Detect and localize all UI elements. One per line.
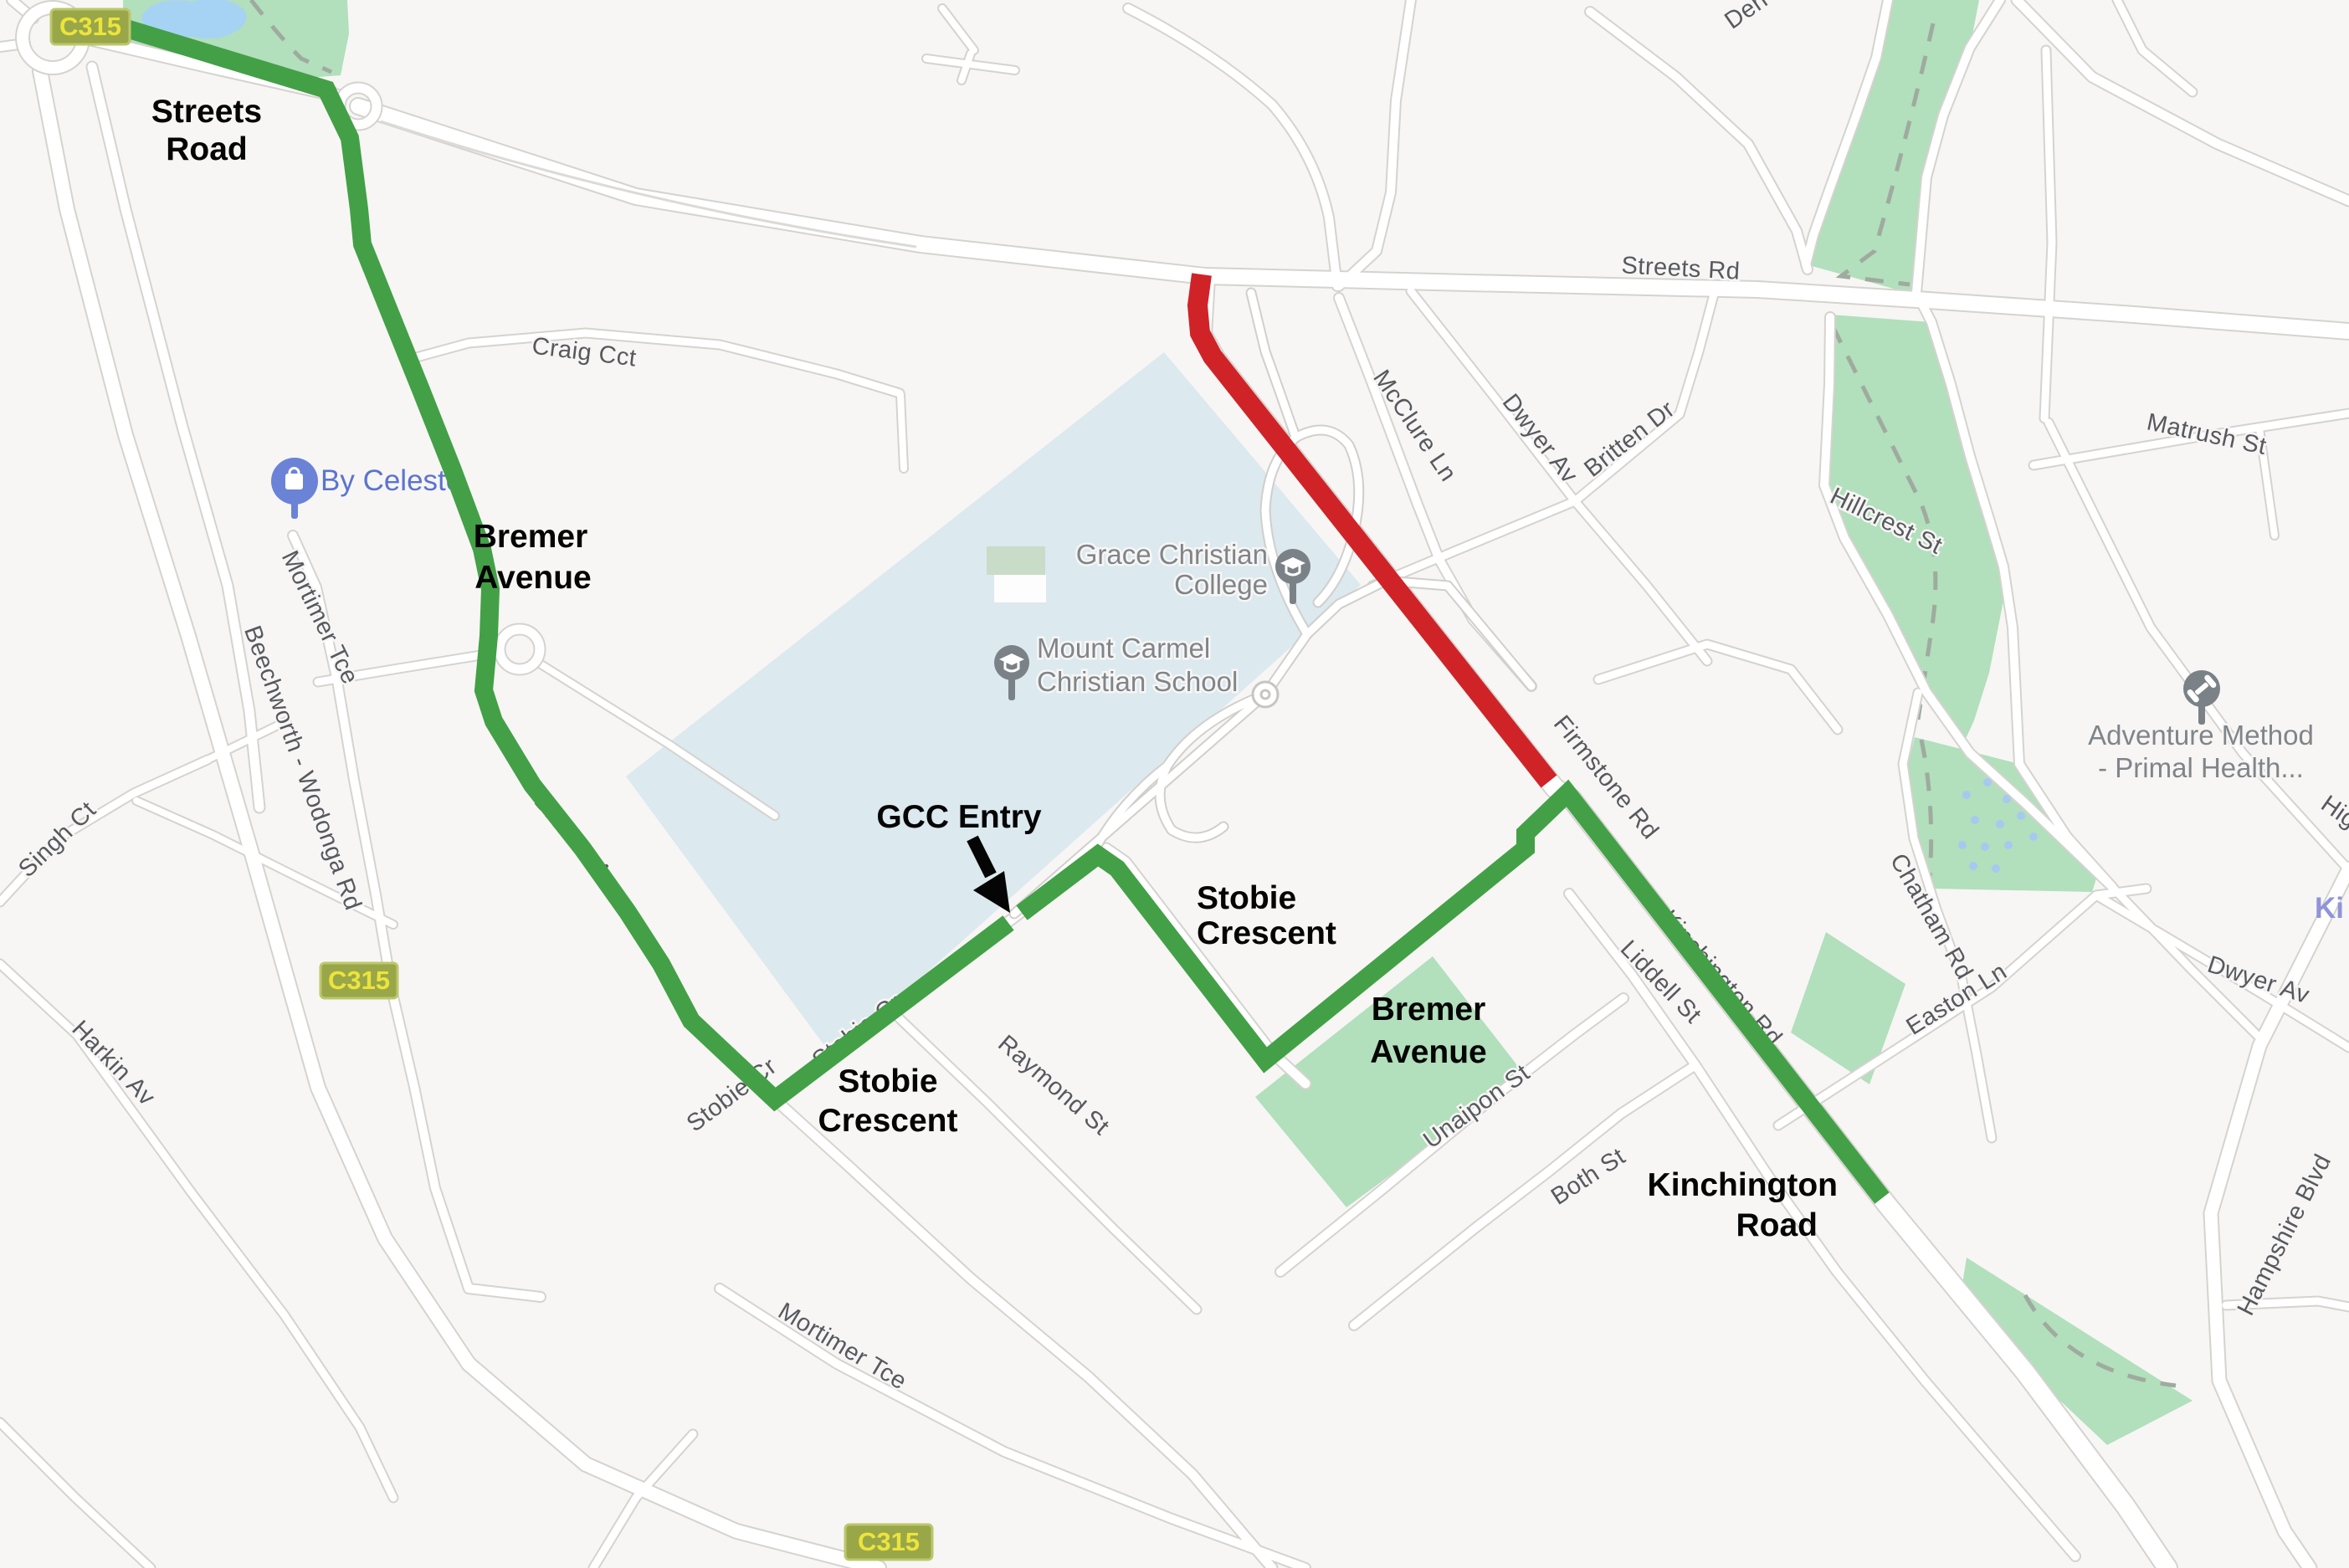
svg-text:Christian School: Christian School xyxy=(1037,666,1238,697)
svg-text:GCC Entry: GCC Entry xyxy=(876,799,1042,835)
svg-text:Bremer: Bremer xyxy=(474,519,588,555)
svg-text:Road: Road xyxy=(1736,1207,1818,1243)
svg-text:Avenue: Avenue xyxy=(474,560,591,596)
svg-text:Stobie: Stobie xyxy=(838,1063,937,1099)
svg-text:Avenue: Avenue xyxy=(1370,1034,1486,1070)
svg-text:Mount Carmel: Mount Carmel xyxy=(1037,633,1210,664)
svg-text:C315: C315 xyxy=(858,1527,920,1556)
svg-text:By Celeste: By Celeste xyxy=(321,464,462,497)
svg-text:Ki: Ki xyxy=(2315,892,2344,925)
svg-text:Crescent: Crescent xyxy=(818,1103,958,1139)
svg-text:Bremer: Bremer xyxy=(1372,992,1486,1027)
svg-text:Road: Road xyxy=(166,131,248,167)
svg-text:Stobie: Stobie xyxy=(1197,880,1296,916)
svg-text:C315: C315 xyxy=(59,12,121,41)
svg-text:Adventure Method: Adventure Method xyxy=(2088,720,2314,751)
svg-text:- Primal Health...: - Primal Health... xyxy=(2098,752,2304,783)
svg-text:Crescent: Crescent xyxy=(1197,915,1336,951)
svg-text:Kinchington: Kinchington xyxy=(1648,1167,1838,1203)
svg-text:C315: C315 xyxy=(328,966,390,995)
svg-text:Grace Christian: Grace Christian xyxy=(1076,539,1268,570)
svg-text:College: College xyxy=(1174,569,1268,600)
svg-text:Streets: Streets xyxy=(151,94,262,130)
